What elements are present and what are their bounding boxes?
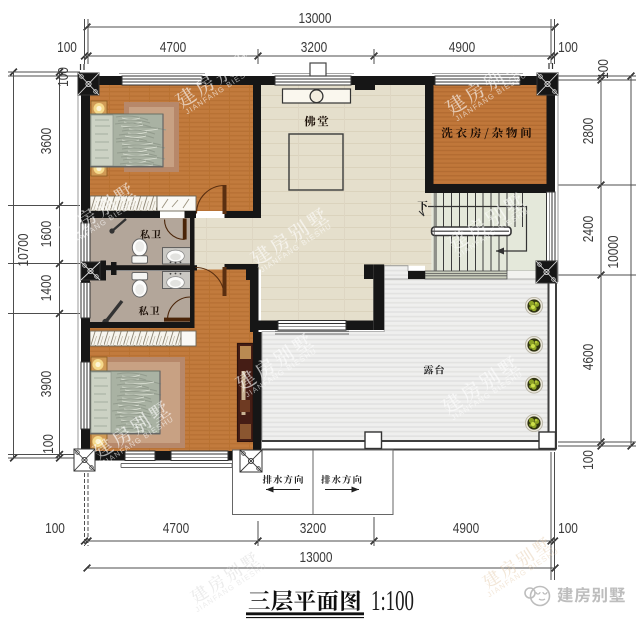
- svg-text:3200: 3200: [300, 520, 326, 537]
- svg-text:100: 100: [45, 520, 65, 537]
- svg-text:10700: 10700: [15, 234, 32, 267]
- svg-text:13000: 13000: [300, 549, 333, 566]
- svg-text:4900: 4900: [449, 39, 475, 56]
- svg-text:3600: 3600: [38, 128, 55, 154]
- svg-text:4600: 4600: [580, 344, 597, 370]
- svg-text:1:100: 1:100: [371, 586, 414, 617]
- svg-text:4900: 4900: [453, 520, 479, 537]
- svg-text:100: 100: [580, 450, 597, 470]
- svg-text:100: 100: [57, 39, 77, 56]
- svg-text:2400: 2400: [580, 216, 597, 242]
- svg-text:2800: 2800: [580, 118, 597, 144]
- svg-text:100: 100: [558, 39, 578, 56]
- svg-text:1600: 1600: [38, 221, 55, 247]
- svg-text:3900: 3900: [38, 371, 55, 397]
- svg-text:4700: 4700: [163, 520, 189, 537]
- svg-text:1400: 1400: [38, 275, 55, 301]
- svg-text:100: 100: [40, 434, 57, 454]
- svg-text:3200: 3200: [301, 39, 327, 56]
- svg-text:100: 100: [558, 520, 578, 537]
- svg-text:13000: 13000: [299, 10, 332, 27]
- svg-text:100: 100: [595, 59, 612, 79]
- svg-text:100: 100: [55, 67, 72, 87]
- svg-text:4700: 4700: [160, 39, 186, 56]
- svg-text:10000: 10000: [605, 236, 622, 269]
